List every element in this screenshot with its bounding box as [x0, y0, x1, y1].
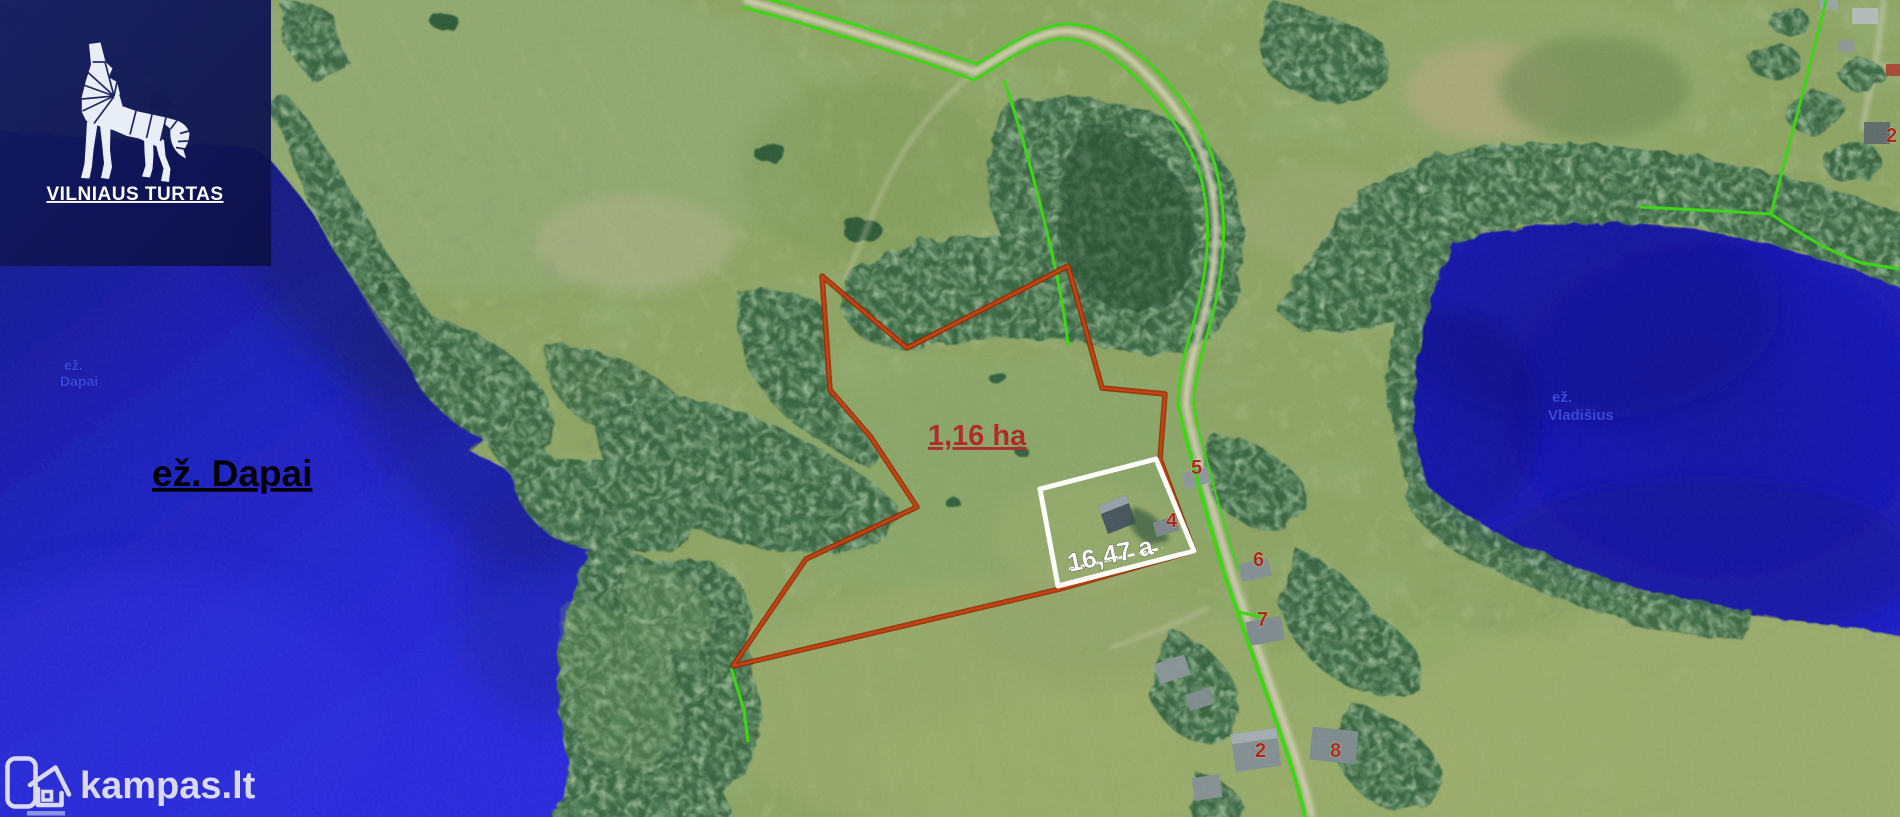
svg-text:1,16 ha: 1,16 ha — [928, 420, 1027, 452]
svg-text:kampas.lt: kampas.lt — [80, 765, 256, 807]
svg-text:Vladišius: Vladišius — [1548, 407, 1614, 424]
svg-text:8: 8 — [1330, 740, 1341, 762]
svg-text:VILNIAUS TURTAS: VILNIAUS TURTAS — [46, 184, 223, 205]
svg-text:5: 5 — [1191, 457, 1202, 479]
svg-text:2: 2 — [1255, 740, 1266, 762]
svg-text:6: 6 — [1253, 549, 1264, 571]
svg-text:2: 2 — [1886, 125, 1897, 147]
svg-text:4: 4 — [1166, 510, 1178, 532]
svg-text:7: 7 — [1257, 609, 1268, 631]
svg-text:ež.: ež. — [64, 357, 83, 373]
svg-text:Dapai: Dapai — [60, 373, 98, 389]
svg-text:ež. Dapai: ež. Dapai — [152, 453, 312, 494]
svg-text:ež.: ež. — [1552, 389, 1572, 406]
